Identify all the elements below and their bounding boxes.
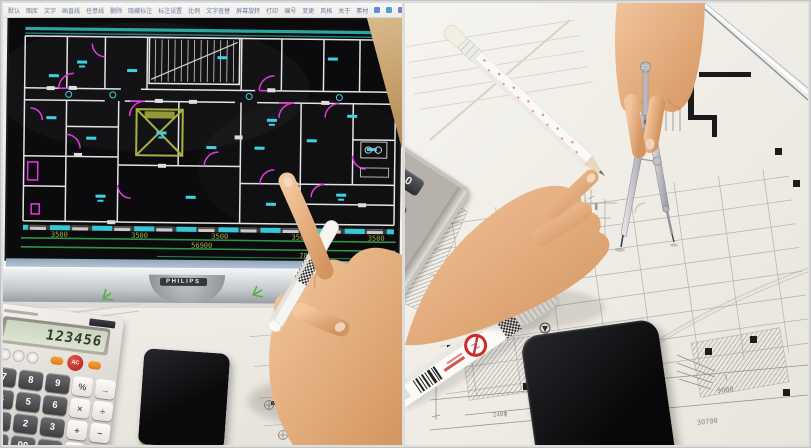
dim-label: 3500 bbox=[131, 232, 148, 240]
dim-label: 3500 bbox=[51, 231, 68, 239]
calculator-key: 6 bbox=[42, 394, 68, 416]
calculator-key: 9 bbox=[45, 373, 71, 395]
cad-menu-item[interactable]: 文字 bbox=[44, 6, 56, 15]
calculator-keypad: 7 8 9 % → 4 5 6 × ÷ 1 2 3 + − 0 00 . = bbox=[3, 366, 116, 445]
calculator-key: 1 bbox=[3, 410, 12, 432]
cad-menu-item[interactable]: 素材 bbox=[356, 6, 368, 15]
cad-menu-item[interactable]: 比例 bbox=[188, 6, 200, 15]
right-photo-panel: 9000 30700 2400 0 1 4 bbox=[405, 3, 808, 445]
calculator-memory-key bbox=[26, 351, 39, 364]
monitor-screen: 3500 3500 3500 3500 3500 56900 7800 bbox=[7, 16, 401, 264]
smartphone bbox=[138, 348, 231, 445]
cad-menu-item[interactable]: 屏幕旋转 bbox=[236, 6, 260, 15]
calculator-key: × bbox=[69, 398, 91, 419]
cad-menu-item[interactable]: 关于 bbox=[338, 6, 350, 15]
calculator-key: = bbox=[86, 444, 108, 445]
cad-menu-item[interactable]: 任意线 bbox=[86, 6, 104, 15]
dim-label: 3500 bbox=[211, 233, 228, 241]
calculator-key: 4 bbox=[3, 388, 14, 410]
calculator-key: 8 bbox=[18, 369, 44, 391]
calculator-key: . bbox=[37, 438, 63, 445]
cad-floorplan: 3500 3500 3500 3500 3500 56900 7800 bbox=[7, 16, 401, 264]
cad-menubar: 默认 图库 文字 画直线 任意线 删除 隐藏标注 标注设置 比例 文字查替 屏幕… bbox=[3, 3, 402, 18]
dim-label: 3500 bbox=[291, 234, 308, 242]
calculator-memory-key bbox=[12, 349, 25, 362]
dim-secondary-label: 7800 bbox=[299, 252, 316, 260]
calculator-function-key bbox=[88, 361, 102, 371]
toolbar-icon[interactable] bbox=[386, 7, 392, 13]
cad-menu-item[interactable]: 标注设置 bbox=[158, 6, 182, 15]
calculator-key: ÷ bbox=[92, 401, 114, 422]
calculator-key: + bbox=[66, 420, 88, 441]
calculator-ac-key: AC bbox=[66, 354, 84, 372]
toolbar-icon[interactable] bbox=[398, 7, 402, 13]
calculator-key: 0 bbox=[405, 166, 426, 197]
cad-menu-item[interactable]: 编号 bbox=[284, 6, 296, 15]
toolbar-icon[interactable] bbox=[374, 7, 380, 13]
monitor-brand-logo: PHILIPS bbox=[160, 278, 207, 286]
cad-menu-item[interactable]: 删除 bbox=[110, 6, 122, 15]
cad-menu-item[interactable]: 文字查替 bbox=[206, 6, 230, 15]
left-photo-panel: 3500 3500 3500 3500 3500 56900 7800 PHIL… bbox=[3, 3, 402, 445]
cad-menu-item[interactable]: 风格 bbox=[320, 6, 332, 15]
cad-menu-item[interactable]: 画直线 bbox=[62, 6, 80, 15]
cad-menu-item[interactable]: 默认 bbox=[8, 6, 20, 15]
calculator-key: 3 bbox=[39, 416, 65, 438]
monitor-bezel: PHILIPS bbox=[3, 267, 402, 305]
calculator-key: 7 bbox=[3, 366, 17, 388]
calculator-function-key bbox=[50, 356, 64, 366]
dim-total-label: 56900 bbox=[191, 242, 212, 250]
calculator-key: 1 bbox=[405, 192, 408, 223]
calculator-key bbox=[63, 441, 85, 445]
dim-label: 3500 bbox=[368, 235, 385, 243]
desk-calculator: 123456 AC 7 8 9 % → 4 5 6 × ÷ 1 2 3 bbox=[3, 303, 124, 445]
calculator-key: 5 bbox=[15, 391, 41, 413]
calculator-key: 2 bbox=[12, 413, 38, 435]
calculator-key: 00 bbox=[10, 435, 36, 445]
photo-collage: 3500 3500 3500 3500 3500 56900 7800 PHIL… bbox=[0, 0, 811, 448]
calculator-brand-mark bbox=[4, 309, 38, 316]
calculator-key: − bbox=[89, 422, 111, 443]
calculator-key: → bbox=[94, 379, 116, 400]
cad-menu-item[interactable]: 变更 bbox=[302, 6, 314, 15]
calculator-memory-key bbox=[3, 348, 11, 361]
calculator-key: 0 bbox=[3, 432, 9, 445]
cad-menu-item[interactable]: 图库 bbox=[26, 6, 38, 15]
cad-menu-item[interactable]: 隐藏标注 bbox=[128, 6, 152, 15]
calculator-key: % bbox=[71, 376, 93, 397]
smartphone bbox=[520, 318, 680, 445]
cad-menu-item[interactable]: 打印 bbox=[266, 6, 278, 15]
